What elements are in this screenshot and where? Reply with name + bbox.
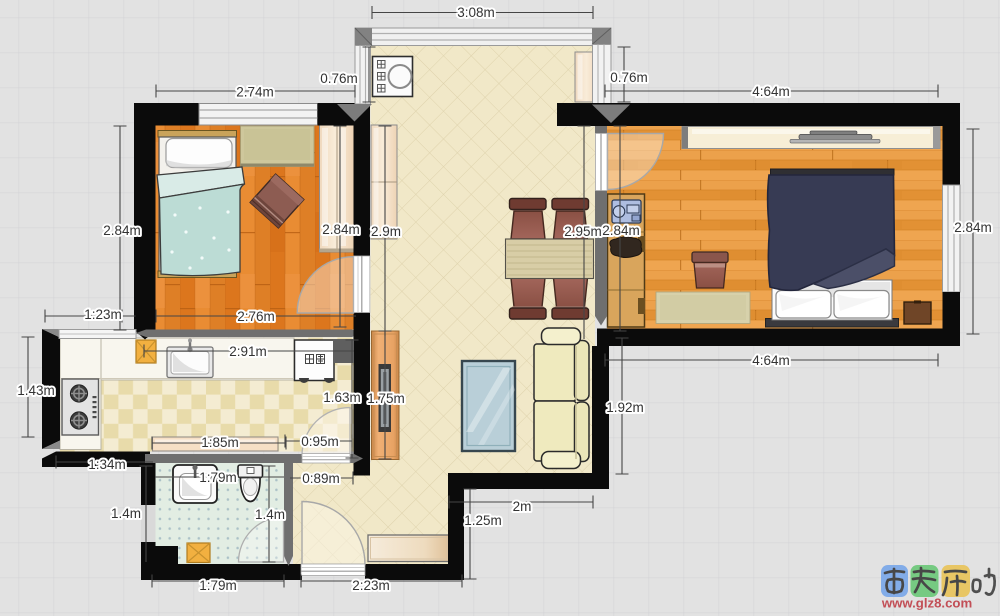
svg-text:1:34m: 1:34m — [88, 457, 126, 472]
svg-text:2m: 2m — [513, 499, 532, 514]
svg-text:1.4m: 1.4m — [111, 506, 141, 521]
svg-text:www.glz8.com: www.glz8.com — [881, 596, 972, 611]
svg-text:2.84m: 2.84m — [103, 223, 141, 238]
svg-text:1.75m: 1.75m — [367, 391, 405, 406]
svg-text:0:89m: 0:89m — [302, 471, 340, 486]
svg-text:2.84m: 2.84m — [954, 220, 992, 235]
svg-text:2.84m: 2.84m — [322, 222, 360, 237]
svg-text:2:76m: 2:76m — [237, 309, 275, 324]
svg-text:1.92m: 1.92m — [606, 400, 644, 415]
svg-text:1.4m: 1.4m — [255, 507, 285, 522]
svg-text:2.74m: 2.74m — [236, 85, 274, 100]
svg-text:1:23m: 1:23m — [84, 307, 122, 322]
svg-text:1.63m: 1.63m — [323, 390, 361, 405]
svg-text:4:64m: 4:64m — [752, 353, 790, 368]
svg-text:1.25m: 1.25m — [464, 513, 502, 528]
svg-text:2:23m: 2:23m — [352, 578, 390, 593]
svg-text:1:79m: 1:79m — [199, 470, 237, 485]
svg-text:2.95m: 2.95m — [564, 224, 602, 239]
svg-text:1:79m: 1:79m — [199, 578, 237, 593]
svg-text:4:64m: 4:64m — [752, 84, 790, 99]
svg-text:2.84m: 2.84m — [602, 223, 640, 238]
svg-text:3:08m: 3:08m — [457, 5, 495, 20]
svg-text:0.76m: 0.76m — [320, 71, 358, 86]
svg-text:1:85m: 1:85m — [201, 435, 239, 450]
svg-text:0:95m: 0:95m — [301, 434, 339, 449]
svg-text:2.9m: 2.9m — [371, 224, 401, 239]
svg-text:1.43m: 1.43m — [17, 383, 55, 398]
svg-text:0.76m: 0.76m — [610, 70, 648, 85]
svg-text:2:91m: 2:91m — [229, 344, 267, 359]
